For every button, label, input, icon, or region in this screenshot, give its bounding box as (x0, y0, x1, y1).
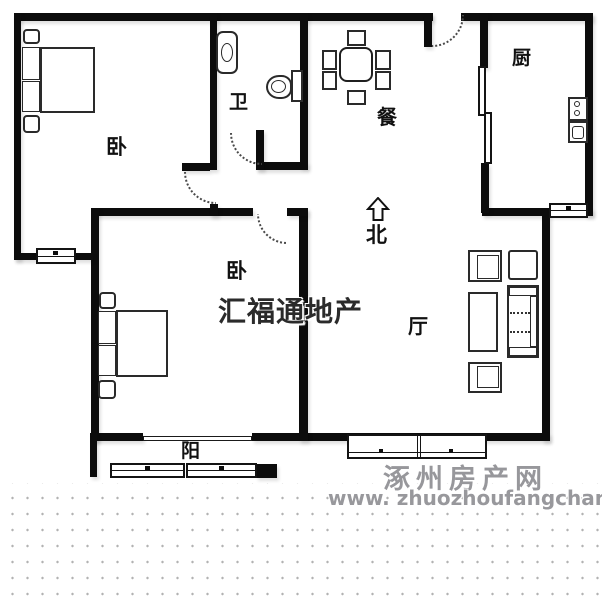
dining-chair-bottom (347, 90, 366, 105)
door-arc-bathroom (230, 133, 262, 165)
watermark-site-url: www. zhuozhoufangchan. com (328, 486, 602, 510)
wall-kitchen-left-lower (481, 163, 489, 213)
bedroom2-nightstand-bottom (98, 380, 116, 399)
dining-chair-left-2 (322, 71, 337, 90)
dining-chair-top (347, 30, 366, 46)
wall-living-right (542, 214, 550, 441)
living-sofa-armrest-bottom (509, 347, 537, 356)
bedroom1-pillow-top (22, 47, 40, 80)
wall-bedroom2-top-right (287, 208, 308, 216)
bedroom1-nightstand-top (23, 29, 40, 44)
dining-table (339, 47, 373, 82)
door-arc-entry (432, 15, 464, 47)
room-label-bedroom-1: 卧 (106, 137, 127, 158)
window-kitchen-left-upper (478, 66, 486, 116)
watermark-agency: 汇福通地产 (218, 290, 363, 330)
bedroom2-nightstand-top (99, 292, 116, 309)
door-arc-bedroom2 (257, 214, 287, 244)
kitchen-sink-basin (572, 126, 584, 139)
dining-chair-right-1 (375, 50, 391, 70)
wall-bathroom-stub-left (182, 163, 210, 171)
bedroom1-nightstand-bottom (23, 115, 40, 133)
kitchen-stove-burner-1 (574, 101, 580, 107)
wall-balcony-left (90, 433, 97, 477)
room-label-living: 厅 (408, 316, 428, 336)
living-coffee-table (468, 292, 498, 352)
compass-label: 北 (366, 225, 387, 246)
room-label-balcony: 阳 (181, 442, 200, 461)
room-label-dining: 餐 (377, 107, 397, 127)
living-stool-top (508, 250, 538, 280)
living-armchair-bottom-seat (477, 366, 499, 388)
room-label-bathroom: 卫 (229, 93, 248, 112)
living-armchair-top-seat (477, 255, 499, 279)
window-kitchen-left-lower (484, 112, 492, 164)
wall-balcony-right-block (256, 464, 277, 478)
living-sofa-armrest-top (509, 287, 537, 296)
floor-plan: 北 卧 卫 餐 厨 卧 厅 阳 汇福通地产 涿州房产网 www. zhuozho… (0, 0, 602, 600)
bathroom-sink-basin (221, 43, 233, 62)
bedroom1-pillow-bottom (22, 81, 40, 112)
dining-chair-right-2 (375, 71, 391, 90)
room-label-kitchen: 厨 (512, 49, 531, 68)
bedroom2-pillow-top (98, 311, 116, 344)
toilet-tank (291, 70, 303, 102)
kitchen-stove-burner-2 (574, 110, 580, 116)
bedroom1-bed-mattress (40, 47, 95, 113)
wall-top-left (14, 13, 433, 21)
wall-bedroom2-bottom-left (91, 433, 143, 441)
bedroom2-pillow-bottom (98, 345, 116, 376)
wall-door-post (210, 204, 218, 216)
wall-kitchen-left-upper (480, 13, 488, 68)
wall-outer-left (14, 13, 21, 260)
wall-entry-stub (424, 13, 432, 47)
window-living-bay (347, 434, 487, 459)
room-label-bedroom-2: 卧 (226, 261, 247, 282)
dining-chair-left-1 (322, 50, 337, 70)
bedroom2-bed-mattress (116, 310, 168, 377)
door-arc-bedroom1 (184, 172, 216, 204)
living-sofa-cushion-line-2 (510, 331, 530, 333)
wall-bedroom2-top (93, 208, 253, 216)
toilet-bowl-inner (271, 80, 286, 93)
wall-bedroom2-bottom-right (252, 433, 308, 441)
living-sofa-cushion-line-1 (510, 312, 530, 314)
north-arrow-icon (366, 197, 390, 222)
living-sofa-backrest (530, 296, 537, 347)
